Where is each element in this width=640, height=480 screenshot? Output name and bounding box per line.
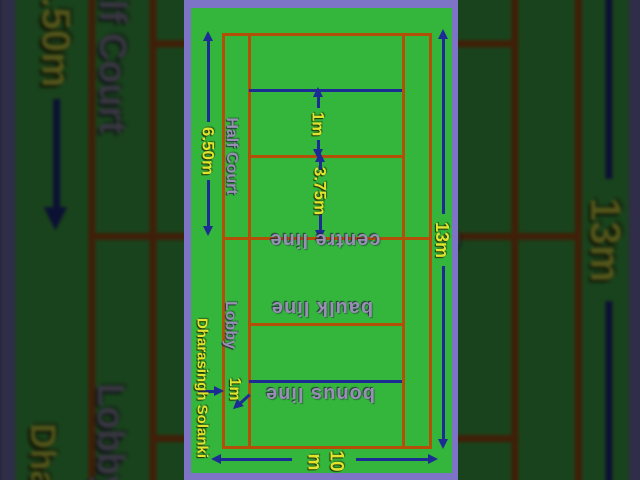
- arrow-1m-lower: [317, 140, 320, 150]
- lobby-line-left: [248, 33, 251, 449]
- arrow-6-50m-lower: [207, 180, 210, 227]
- court-top-boundary: [222, 33, 432, 36]
- arrow-6-50m-upper: [207, 40, 210, 122]
- dim-13m: 13m: [433, 222, 451, 258]
- dim-6-50m: 6.50m: [200, 127, 217, 175]
- court-bottom-boundary: [222, 446, 432, 449]
- arrow-10m-left: [220, 458, 292, 461]
- bonus-line-top: [249, 89, 402, 92]
- dim-10m-unit: m: [305, 454, 324, 471]
- dim-3-75m: 3.75m: [312, 167, 329, 215]
- court-diagram-slide: Half Court Lobby centre line baulk line …: [184, 0, 458, 480]
- half-court-label: Half Court: [223, 117, 239, 194]
- baulk-line-label: baulk line: [271, 298, 373, 318]
- dim-10m-value: 10: [327, 450, 346, 471]
- dim-1m-lobby: 1m: [226, 377, 242, 400]
- bonus-line-label: bonus line: [265, 384, 375, 404]
- centre-line-label: centre line: [269, 230, 380, 250]
- baulk-line-bottom: [248, 323, 405, 326]
- baulk-line-top: [248, 155, 405, 158]
- author-label: Dharasingh Solanki: [195, 318, 210, 458]
- lobby-label: Lobby: [222, 301, 238, 349]
- video-stage[interactable]: Half Court Lobby centre line baulk line …: [0, 0, 640, 480]
- arrow-13m-lower: [442, 266, 445, 440]
- lobby-line-right: [402, 33, 405, 449]
- dim-1m-top: 1m: [310, 112, 327, 137]
- arrow-13m-upper: [442, 38, 445, 214]
- arrow-1m-upper: [317, 96, 320, 108]
- arrow-10m-right: [356, 458, 429, 461]
